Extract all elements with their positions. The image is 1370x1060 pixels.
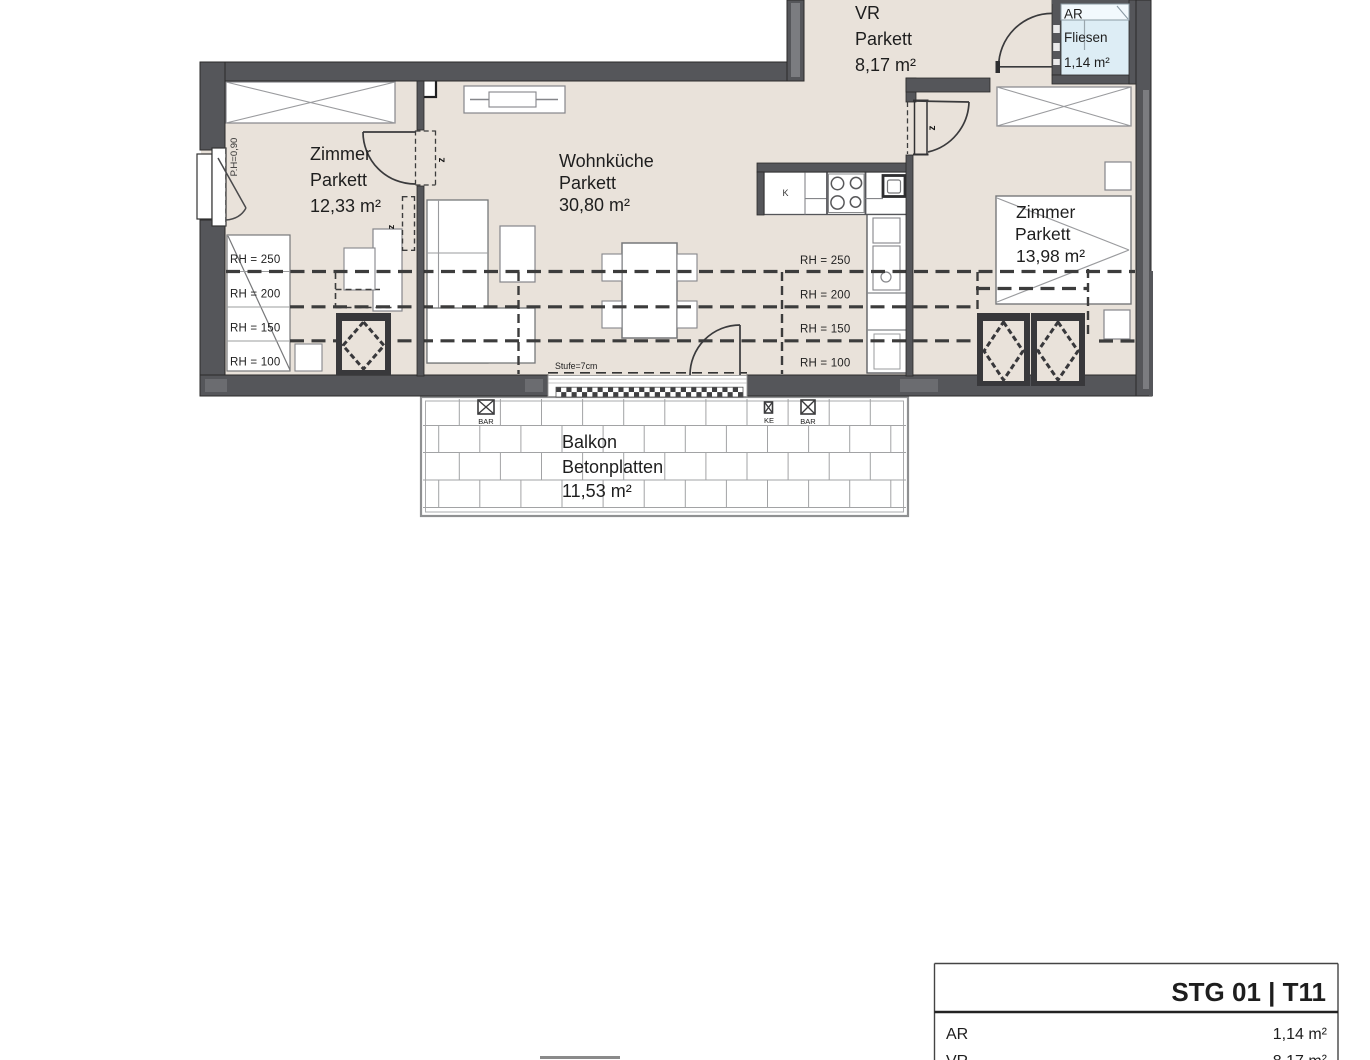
- svg-text:VR: VR: [855, 3, 880, 23]
- svg-text:RH = 150: RH = 150: [800, 324, 851, 336]
- svg-text:P.H=0,90: P.H=0,90: [229, 138, 240, 177]
- svg-text:Stufe=7cm: Stufe=7cm: [555, 361, 597, 371]
- svg-text:RH = 150: RH = 150: [230, 323, 281, 335]
- svg-text:Balkon: Balkon: [562, 432, 617, 452]
- svg-text:30,80 m²: 30,80 m²: [559, 195, 630, 215]
- svg-text:z: z: [927, 126, 938, 131]
- svg-text:RH = 100: RH = 100: [230, 357, 281, 369]
- svg-text:13,98 m²: 13,98 m²: [1016, 246, 1085, 266]
- svg-text:Parkett: Parkett: [855, 29, 912, 49]
- svg-text:BAR: BAR: [478, 417, 494, 426]
- svg-text:8,17 m²: 8,17 m²: [1273, 1053, 1328, 1060]
- svg-text:AR: AR: [946, 1026, 968, 1043]
- svg-text:K: K: [782, 188, 788, 198]
- svg-text:RH = 200: RH = 200: [230, 289, 281, 301]
- svg-text:STG 01 | T11: STG 01 | T11: [1171, 977, 1326, 1007]
- svg-text:8,17 m²: 8,17 m²: [855, 55, 916, 75]
- svg-text:AR: AR: [1064, 7, 1083, 22]
- svg-text:Parkett: Parkett: [310, 170, 367, 190]
- svg-text:KE: KE: [764, 416, 774, 425]
- svg-text:Betonplatten: Betonplatten: [562, 457, 663, 477]
- svg-text:11,53 m²: 11,53 m²: [562, 481, 632, 501]
- svg-text:12,33 m²: 12,33 m²: [310, 196, 381, 216]
- svg-text:Parkett: Parkett: [1015, 224, 1071, 244]
- svg-text:Fliesen: Fliesen: [1064, 30, 1108, 45]
- svg-text:RH = 100: RH = 100: [800, 358, 851, 370]
- svg-text:1,14 m²: 1,14 m²: [1273, 1026, 1328, 1043]
- svg-text:Zimmer: Zimmer: [1016, 202, 1075, 222]
- svg-text:1,14 m²: 1,14 m²: [1064, 55, 1110, 70]
- svg-text:Wohnküche: Wohnküche: [559, 151, 654, 171]
- svg-text:BAR: BAR: [800, 417, 816, 426]
- svg-text:VR: VR: [946, 1053, 968, 1060]
- svg-text:z: z: [437, 158, 448, 163]
- svg-text:RH = 250: RH = 250: [230, 254, 281, 266]
- svg-text:RH = 200: RH = 200: [800, 290, 851, 302]
- svg-text:Zimmer: Zimmer: [310, 144, 371, 164]
- svg-text:z: z: [386, 224, 396, 229]
- svg-text:RH = 250: RH = 250: [800, 255, 851, 267]
- svg-text:Parkett: Parkett: [559, 173, 616, 193]
